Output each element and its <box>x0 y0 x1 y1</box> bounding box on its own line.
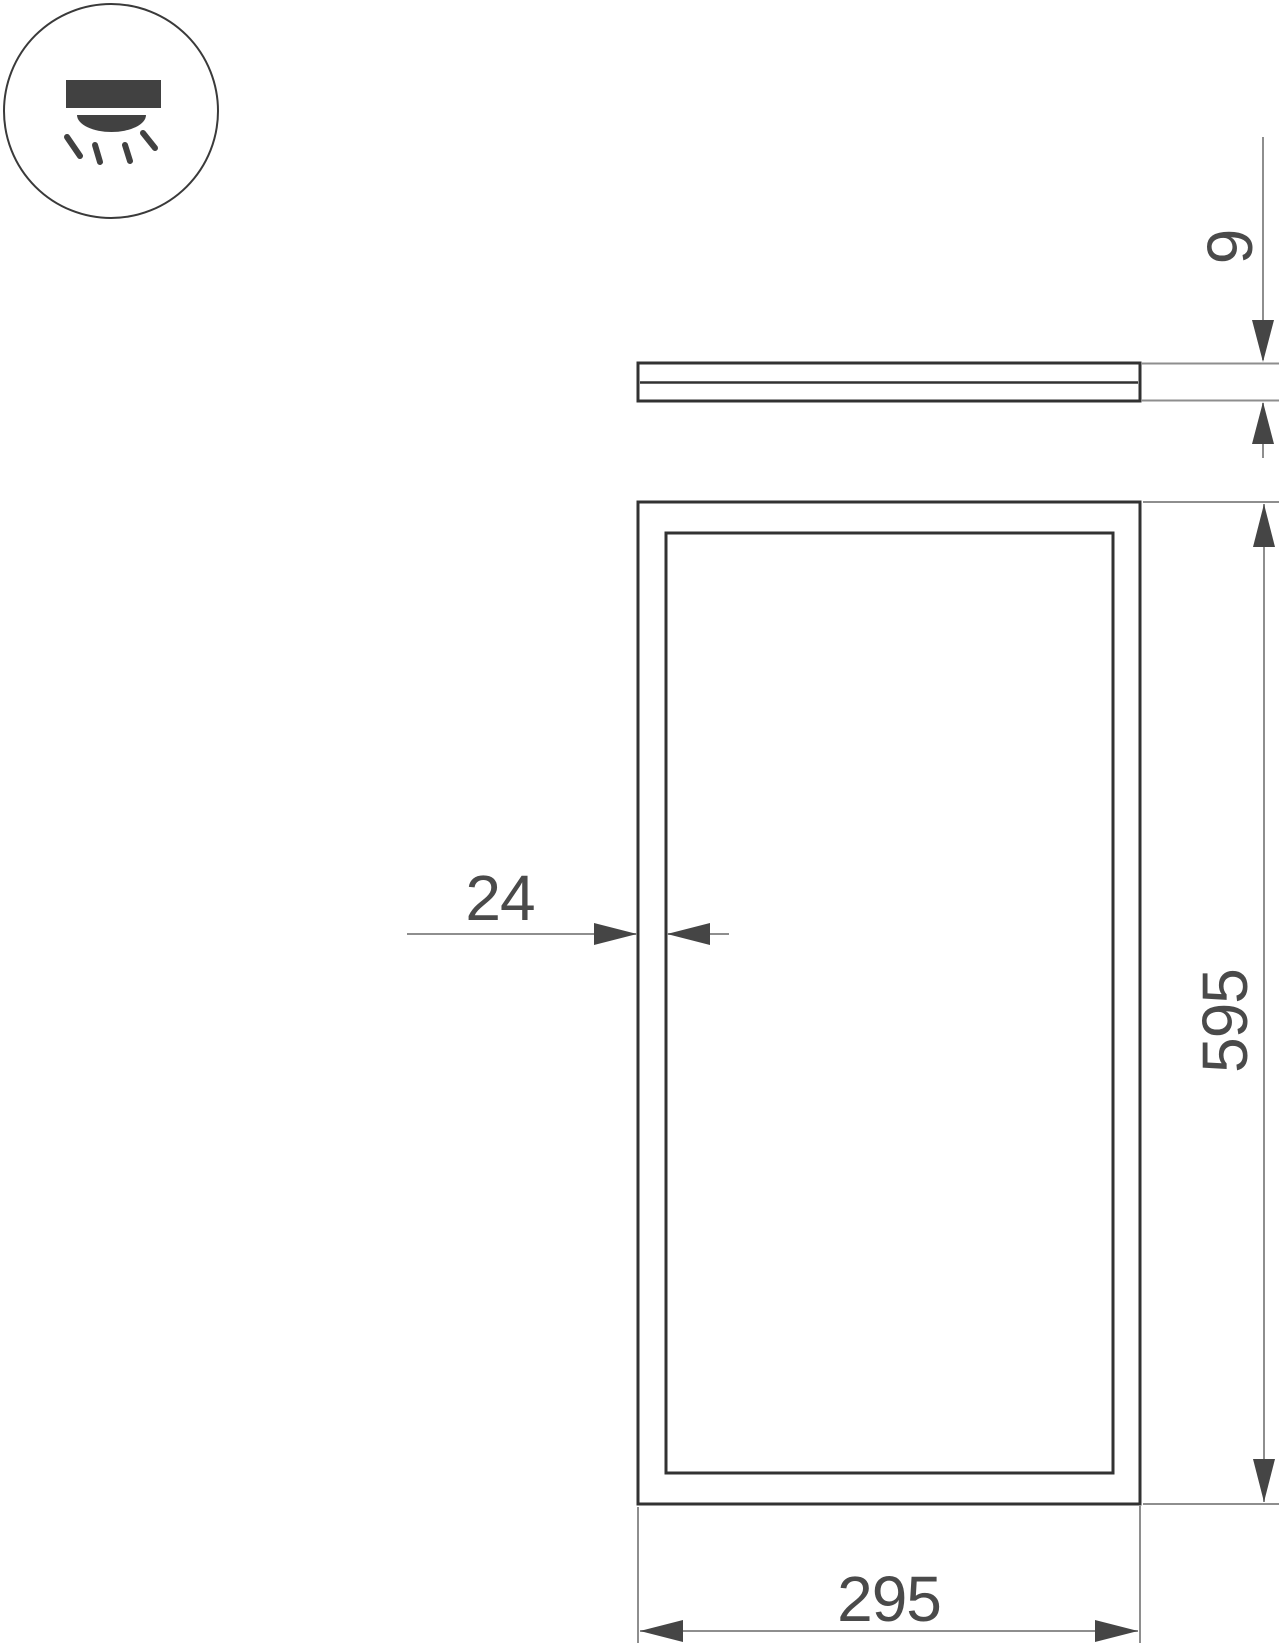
arrow-right-icon <box>1095 1620 1138 1642</box>
dim-frame-width-label: 24 <box>465 862 534 934</box>
panel-dimension-drawing: 9 24 595 <box>0 0 1280 1647</box>
arrow-up-icon <box>1252 402 1274 444</box>
front-view-inner-frame <box>666 533 1113 1473</box>
downlight-icon <box>4 4 218 218</box>
dim-thickness-label: 9 <box>1194 230 1266 265</box>
arrow-left-icon <box>640 1620 683 1642</box>
dim-height-label: 595 <box>1189 969 1261 1073</box>
icon-panel-bar <box>66 80 161 108</box>
technical-drawing-page: 9 24 595 <box>0 0 1280 1647</box>
icon-circle <box>4 4 218 218</box>
arrow-left-icon <box>667 923 710 945</box>
arrow-right-icon <box>594 923 637 945</box>
dim-thickness: 9 <box>1141 137 1279 458</box>
dim-width: 295 <box>638 1506 1140 1643</box>
front-view <box>638 502 1140 1504</box>
side-view <box>638 363 1140 401</box>
dim-height: 595 <box>1143 502 1279 1504</box>
dim-frame-width: 24 <box>407 862 729 945</box>
front-view-outer-frame <box>638 502 1140 1504</box>
arrow-down-icon <box>1252 320 1274 362</box>
dim-width-label: 295 <box>837 1563 941 1635</box>
arrow-up-icon <box>1253 504 1275 547</box>
arrow-down-icon <box>1253 1459 1275 1502</box>
